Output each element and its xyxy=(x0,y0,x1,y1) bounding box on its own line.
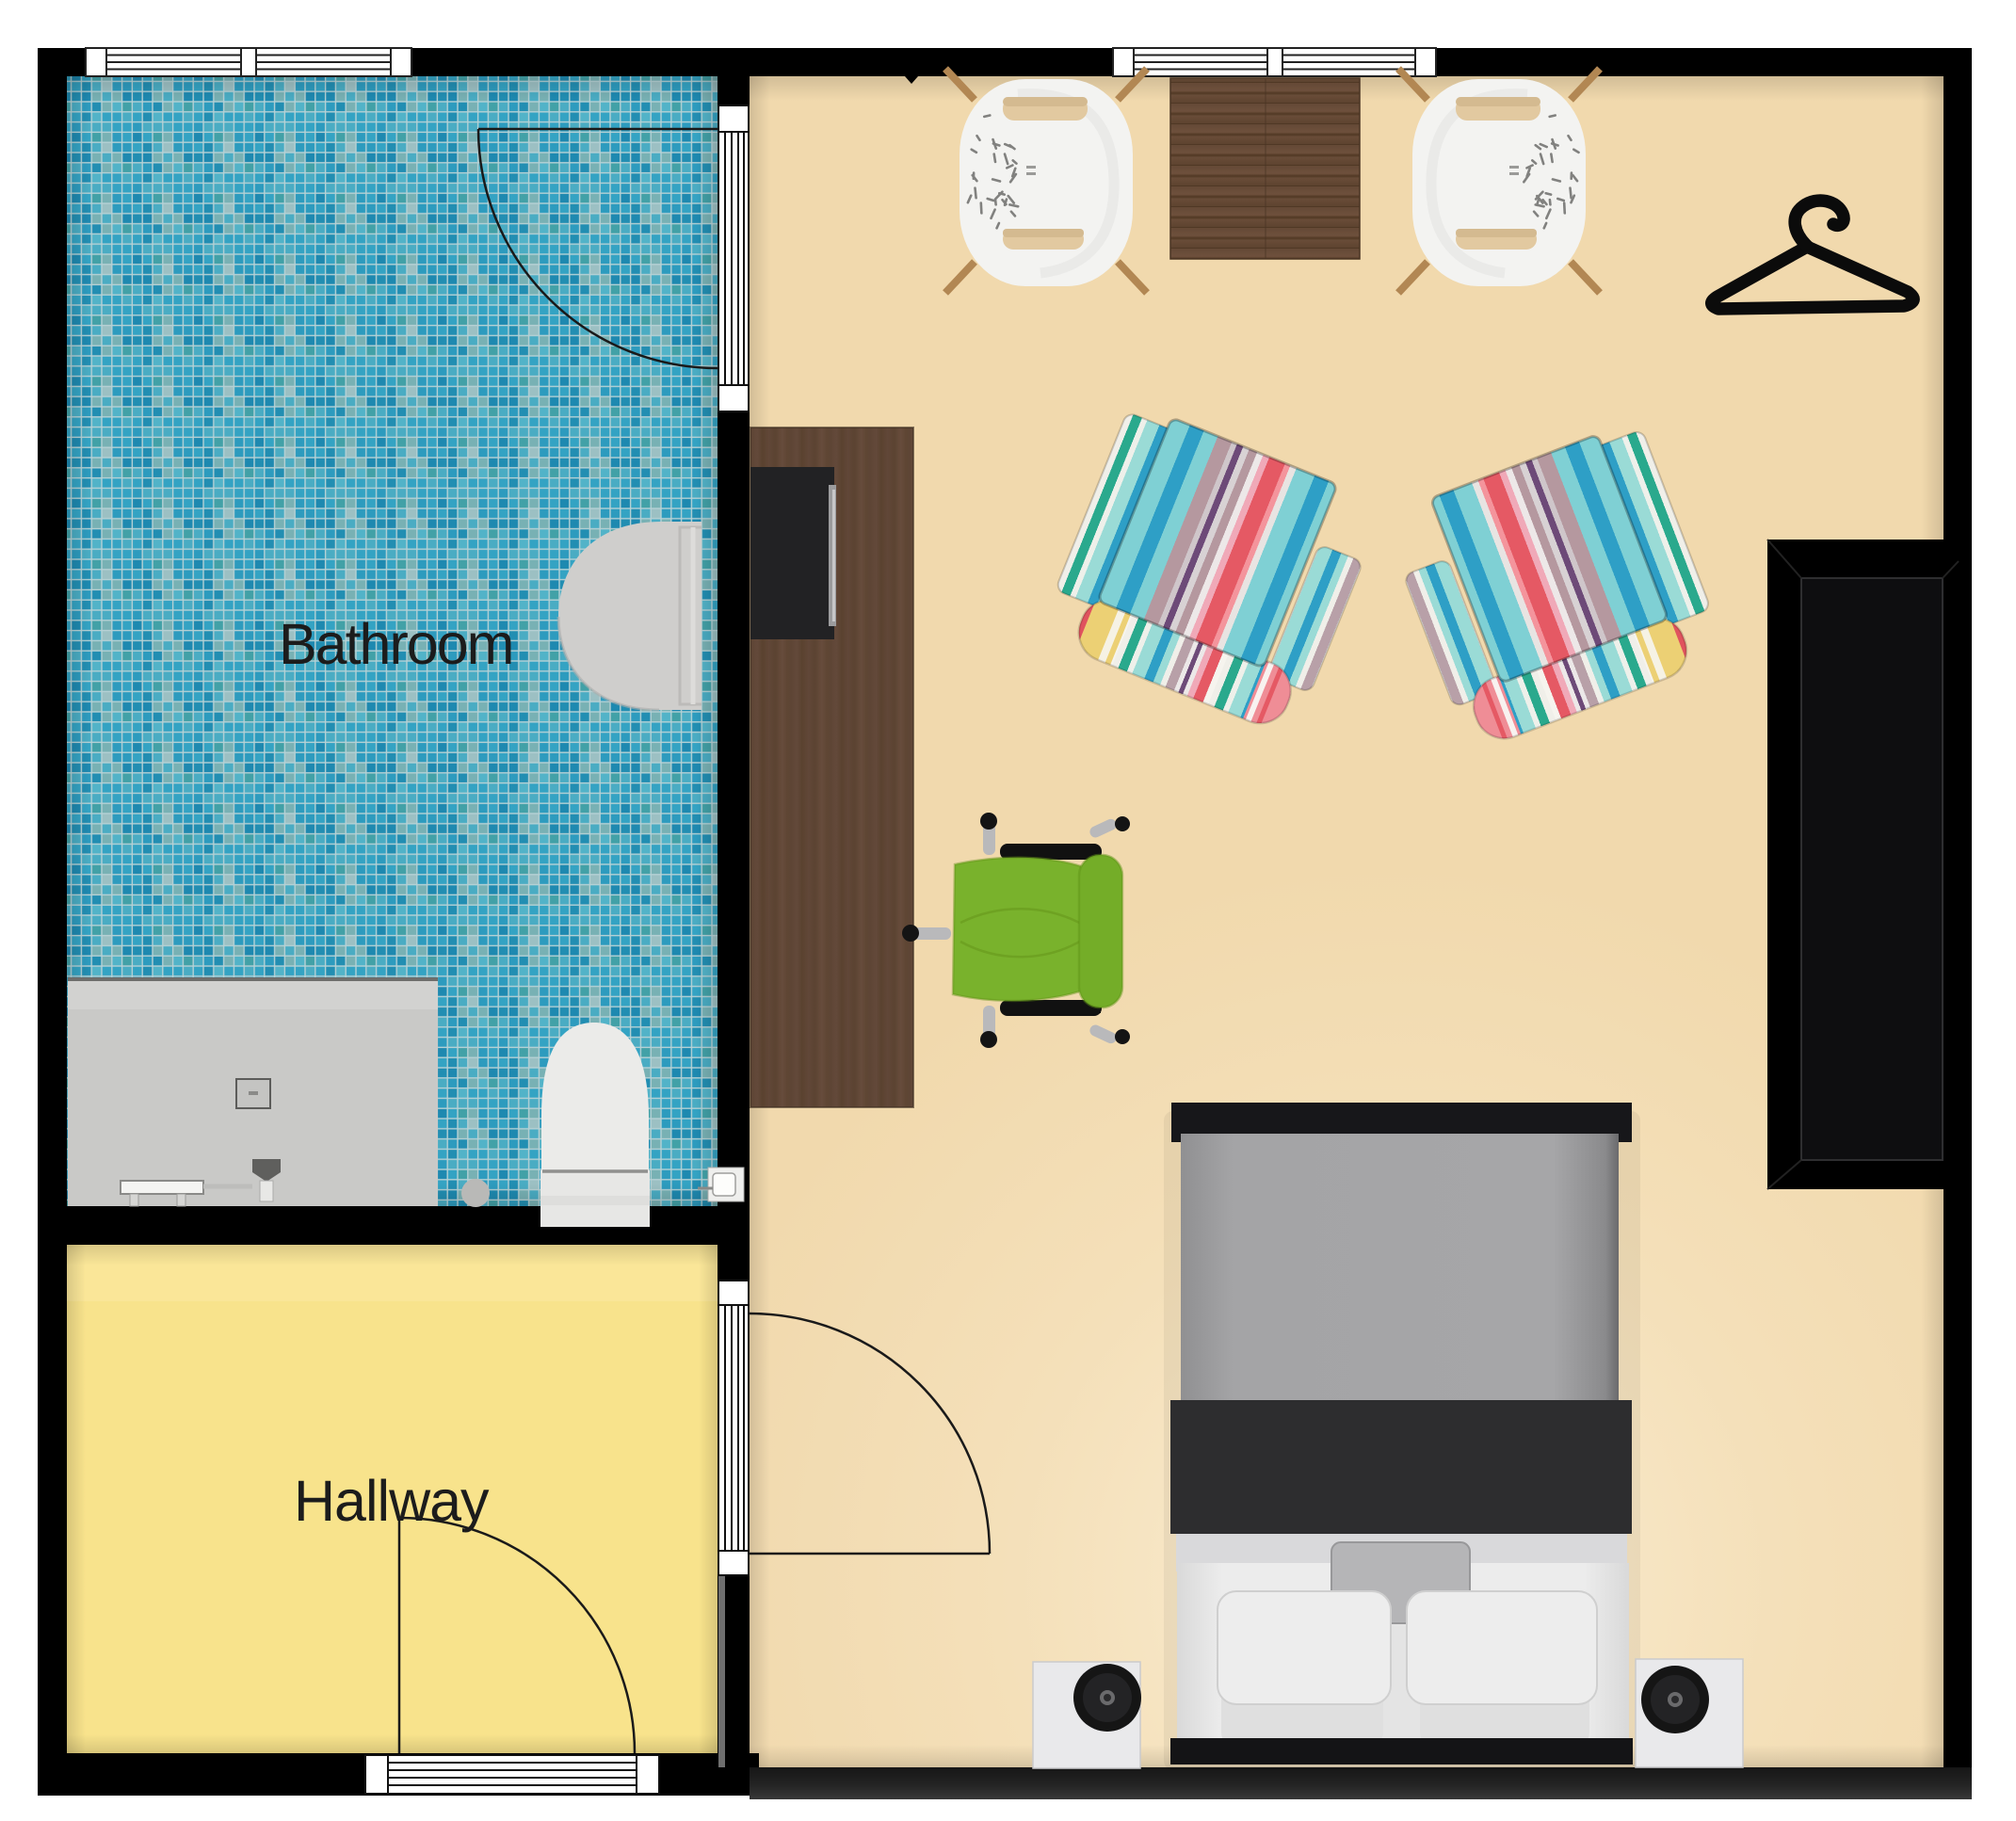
svg-text:Hallway: Hallway xyxy=(294,1469,490,1533)
svg-text:Bathroom: Bathroom xyxy=(279,612,512,676)
